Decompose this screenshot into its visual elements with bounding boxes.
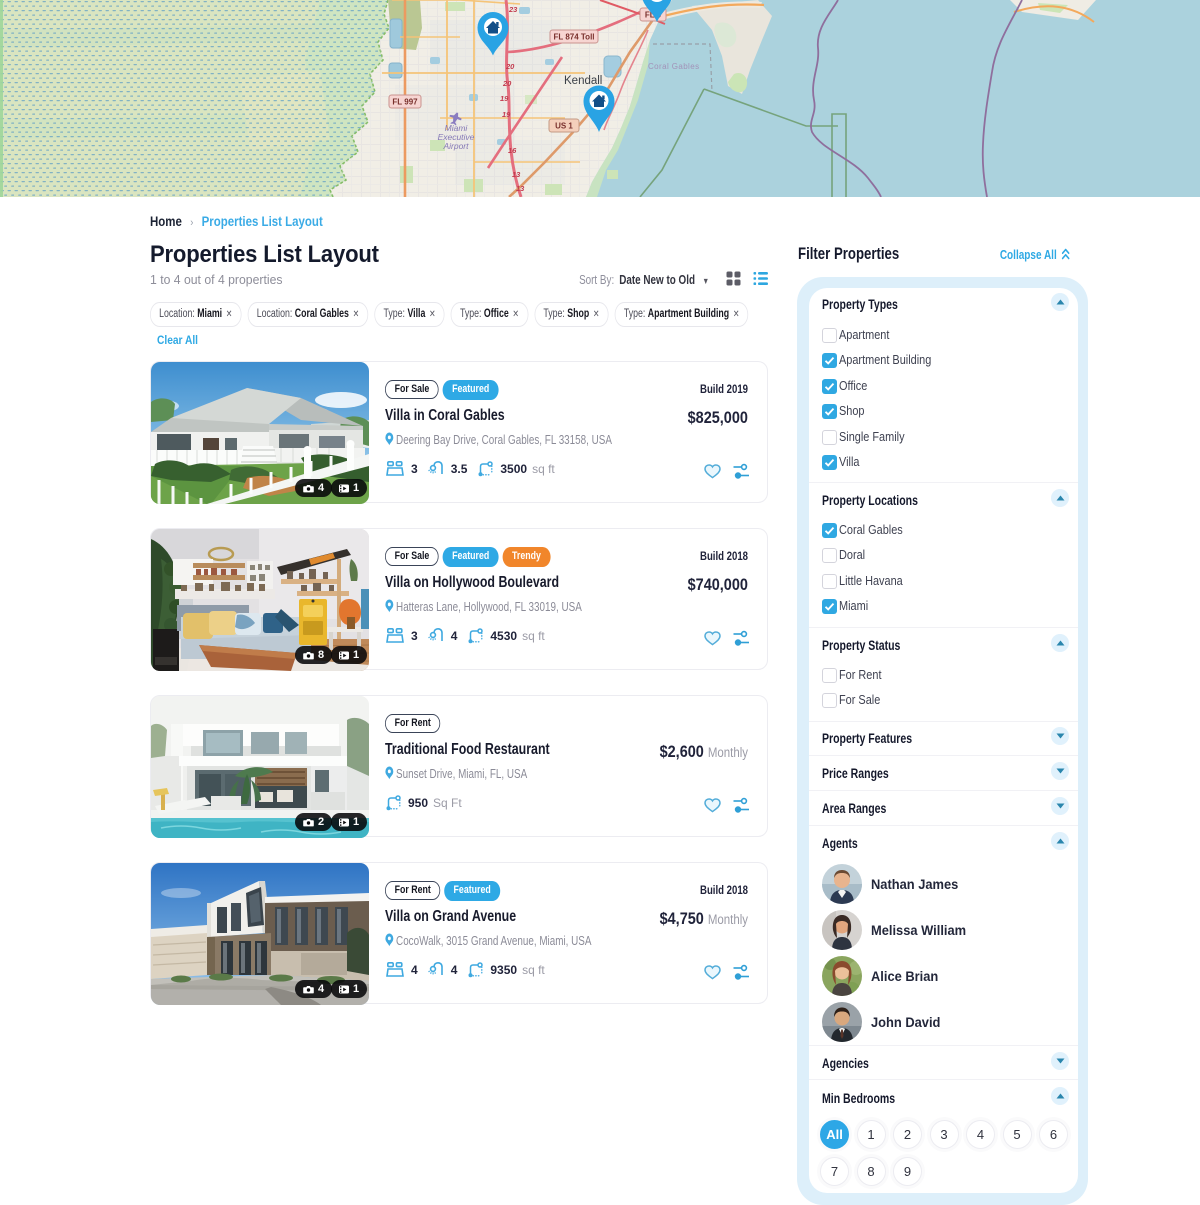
svg-text:FL 997: FL 997 — [392, 98, 418, 107]
svg-text:20: 20 — [502, 79, 512, 88]
svg-text:23: 23 — [508, 5, 518, 14]
svg-text:US 1: US 1 — [555, 122, 573, 131]
svg-text:FL 874 Toll: FL 874 Toll — [553, 33, 594, 42]
svg-text:19: 19 — [500, 94, 509, 103]
svg-text:Coral Gables: Coral Gables — [648, 62, 700, 71]
svg-text:20: 20 — [505, 62, 515, 71]
svg-text:13: 13 — [516, 184, 525, 193]
svg-text:19: 19 — [502, 110, 511, 119]
svg-text:Kendall: Kendall — [564, 75, 602, 87]
svg-text:13: 13 — [512, 170, 521, 179]
svg-text:16: 16 — [508, 146, 517, 155]
svg-text:Airport: Airport — [442, 141, 469, 151]
